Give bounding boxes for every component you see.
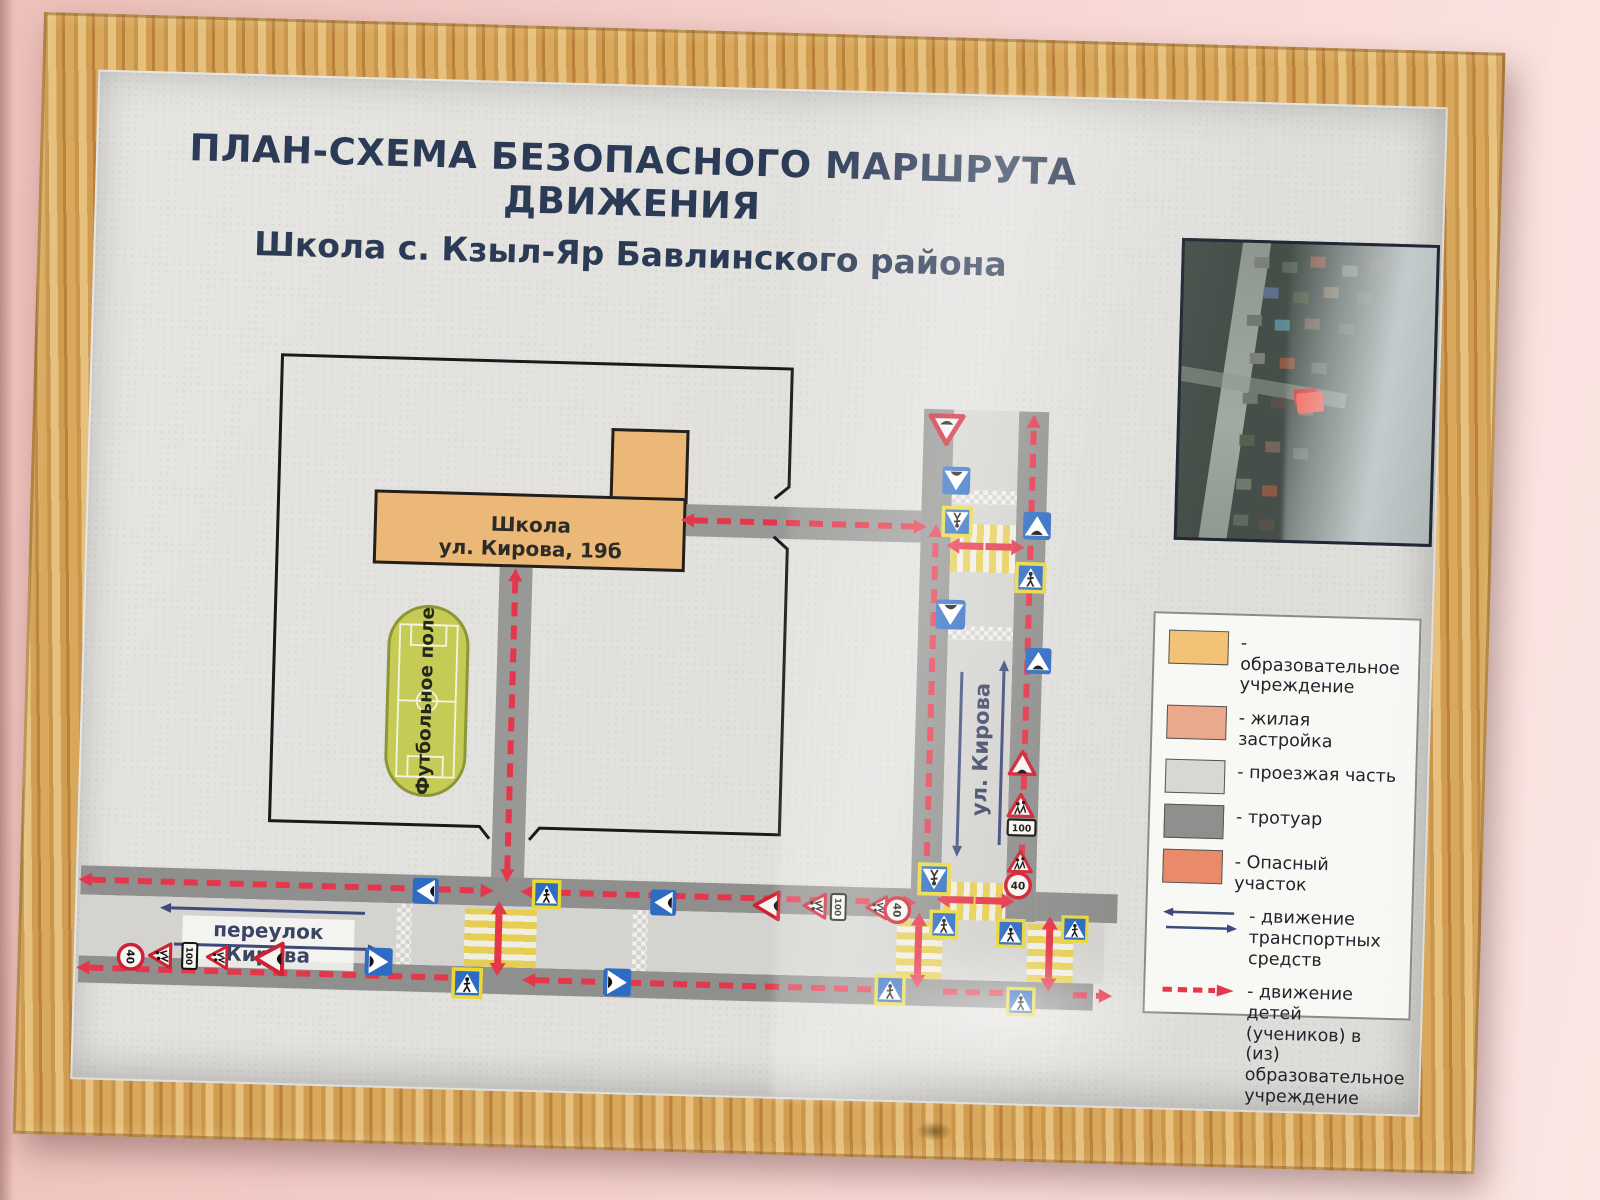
traffic-sign-humpw [251, 940, 288, 977]
legend-label: - проезжая часть [1237, 761, 1397, 788]
traffic-sign-ped [451, 967, 484, 1000]
traffic-sign-hump [941, 465, 972, 496]
traffic-sign-child [146, 941, 175, 970]
svg-text:100: 100 [1012, 823, 1032, 835]
legend-item: - движение транспортных средств [1160, 903, 1400, 974]
traffic-sign-hump [1022, 511, 1053, 542]
legend-swatch [1162, 849, 1223, 885]
traffic-sign-p100: 100 [829, 892, 847, 920]
legend-label: - тротуар [1236, 806, 1323, 831]
legend-traffic-arrows [1161, 903, 1240, 942]
traffic-sign-ped [874, 974, 907, 1007]
legend-label: - жилая застройка [1238, 707, 1405, 755]
legend-item: - образовательное учреждение [1167, 630, 1407, 701]
legend-label: - движение детей (учеников) в (из) образ… [1244, 980, 1397, 1110]
legend-item: - движение детей (учеников) в (из) образ… [1156, 978, 1397, 1110]
traffic-sign-ped [531, 879, 562, 910]
legend-box: - образовательное учреждение- жилая заст… [1142, 611, 1421, 1020]
legend-swatch [1165, 759, 1226, 795]
svg-text:40: 40 [124, 949, 136, 964]
traffic-sign-hump [649, 888, 678, 917]
traffic-sign-hump [1024, 647, 1053, 676]
svg-text:40: 40 [1010, 880, 1025, 892]
traffic-sign-child [204, 944, 231, 971]
traffic-sign-ped [941, 505, 974, 538]
svg-text:40: 40 [890, 903, 902, 918]
legend-label: - движение транспортных средств [1248, 905, 1400, 973]
traffic-sign-hump [602, 967, 633, 998]
legend-children-route-arrow [1159, 978, 1238, 1005]
school-territory-outline [269, 355, 792, 847]
traffic-sign-yield [927, 410, 966, 449]
traffic-sign-humpw [751, 889, 784, 922]
traffic-sign-p100: 100 [181, 941, 199, 969]
wooden-frame: ПЛАН-СХЕМА БЕЗОПАСНОГО МАРШРУТА ДВИЖЕНИЯ… [13, 12, 1506, 1174]
traffic-sign-ped [1060, 915, 1089, 944]
traffic-sign-p100: 100 [1006, 818, 1036, 837]
photo-of-framed-poster: ПЛАН-СХЕМА БЕЗОПАСНОГО МАРШРУТА ДВИЖЕНИЯ… [0, 0, 1600, 1200]
traffic-sign-ped [917, 862, 952, 897]
traffic-sign-child [801, 892, 830, 921]
legend-item: - жилая застройка [1166, 705, 1405, 755]
traffic-sign-lim40: 40 [1004, 871, 1033, 900]
legend-swatch [1168, 630, 1229, 666]
traffic-sign-hump [411, 877, 440, 906]
svg-text:100: 100 [183, 946, 194, 965]
legend-swatch [1163, 804, 1224, 840]
traffic-sign-hump [934, 598, 967, 631]
traffic-sign-ped [1014, 561, 1047, 594]
svg-text:100: 100 [832, 897, 843, 916]
legend-item: - проезжая часть [1165, 759, 1404, 800]
legend-swatch [1166, 705, 1227, 741]
traffic-sign-child [1005, 791, 1035, 821]
legend-item: - Опасный участок [1162, 849, 1401, 899]
legend-label: - Опасный участок [1234, 851, 1401, 899]
traffic-sign-ped [1005, 986, 1036, 1017]
legend-label: - образовательное учреждение [1239, 632, 1407, 701]
traffic-sign-lim40: 40 [883, 896, 912, 925]
legend-item: - тротуар [1163, 804, 1402, 845]
poster-board: ПЛАН-СХЕМА БЕЗОПАСНОГО МАРШРУТА ДВИЖЕНИЯ… [70, 70, 1448, 1117]
traffic-sign-lim40: 40 [116, 942, 145, 971]
traffic-sign-ped [928, 909, 959, 940]
traffic-sign-ped [995, 918, 1026, 949]
traffic-sign-hump [363, 946, 394, 977]
traffic-sign-humpw [1007, 748, 1038, 779]
